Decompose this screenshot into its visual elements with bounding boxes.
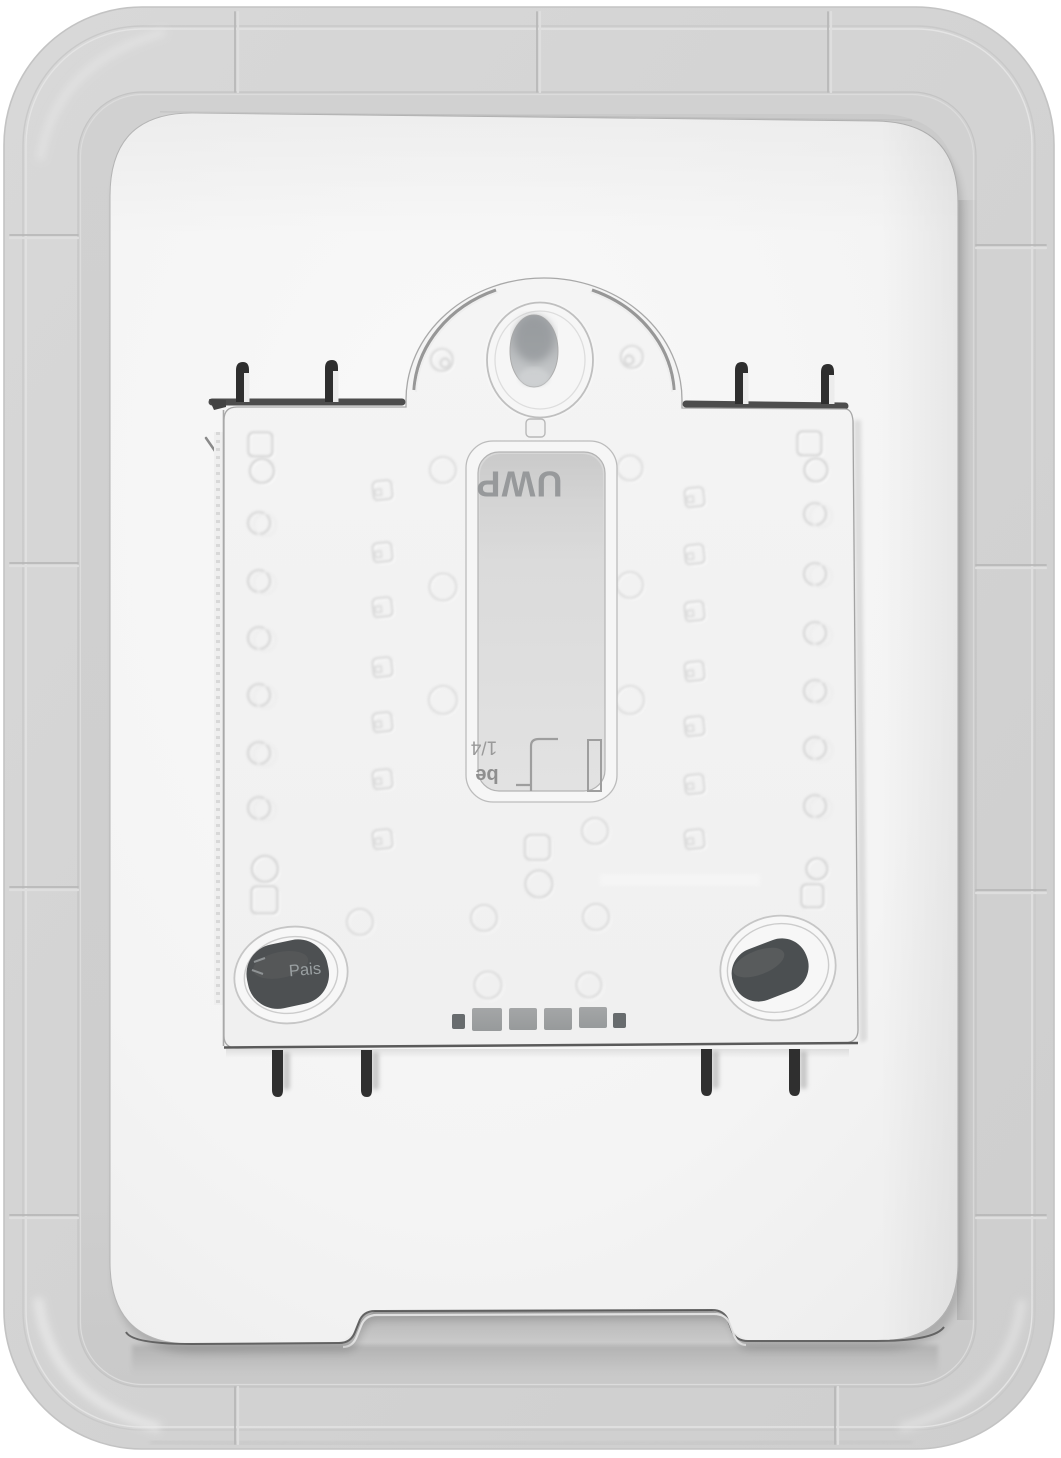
svg-text:Pais: Pais	[288, 960, 322, 981]
svg-text:UWP: UWP	[476, 464, 563, 505]
svg-text:1/4: 1/4	[470, 737, 497, 758]
svg-text:be: be	[475, 764, 498, 786]
